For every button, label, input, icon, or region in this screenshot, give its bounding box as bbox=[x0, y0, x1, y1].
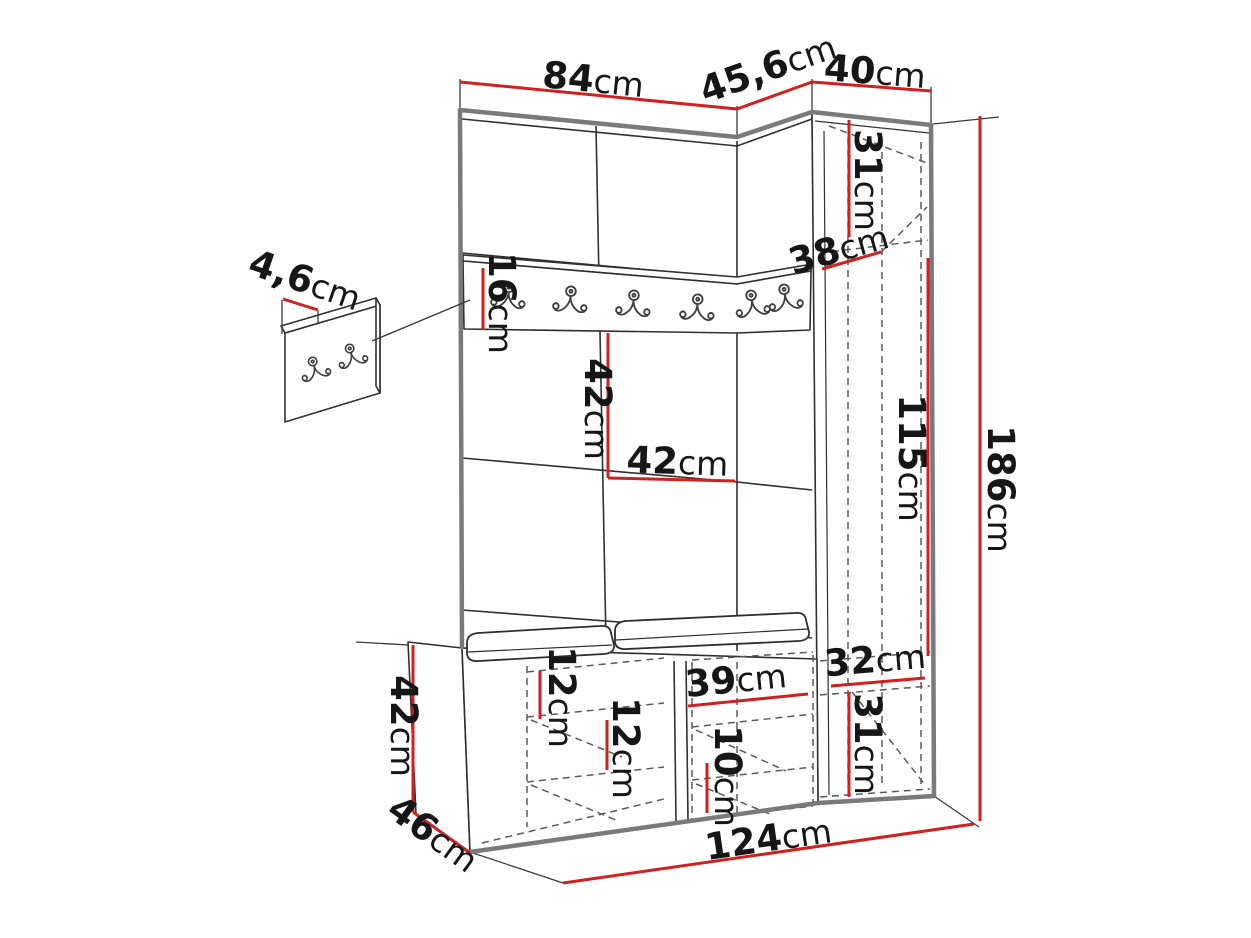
dim-label-main-width: 84cm bbox=[540, 53, 646, 106]
dim-label-cab-inner-height: 115cm bbox=[890, 394, 933, 522]
dim-label-total-height: 186cm bbox=[979, 425, 1022, 553]
dim-label-cab-top-height: 31cm bbox=[846, 129, 889, 231]
dim-label-cab-bottom-height: 31cm bbox=[846, 693, 889, 795]
dim-label-bench-height: 42cm bbox=[382, 675, 425, 777]
dim-label-rail-height: 16cm bbox=[480, 252, 523, 354]
leader-line bbox=[372, 300, 470, 341]
dim-label-cabinet-width: 40cm bbox=[823, 46, 928, 97]
hallway-unit-dimension-diagram: 84cm 45,6cm 40cm 4,6cm 16cm 31cm 38cm 42… bbox=[0, 0, 1251, 938]
wall-hook-panel-detail bbox=[281, 298, 470, 422]
dim-label-niche-width: 42cm bbox=[626, 438, 729, 485]
dim-label-bench-shelf-clearance: 12cm bbox=[604, 697, 647, 799]
dim-label-hook-panel-depth: 4,6cm bbox=[243, 241, 367, 319]
dim-label-bench-top-clearance: 12cm bbox=[540, 646, 583, 748]
dim-label-bench-lower-clearance: 10cm bbox=[706, 725, 749, 827]
dim-label-niche-height: 42cm bbox=[576, 358, 619, 460]
diagram-canvas: 84cm 45,6cm 40cm 4,6cm 16cm 31cm 38cm 42… bbox=[0, 0, 1251, 938]
